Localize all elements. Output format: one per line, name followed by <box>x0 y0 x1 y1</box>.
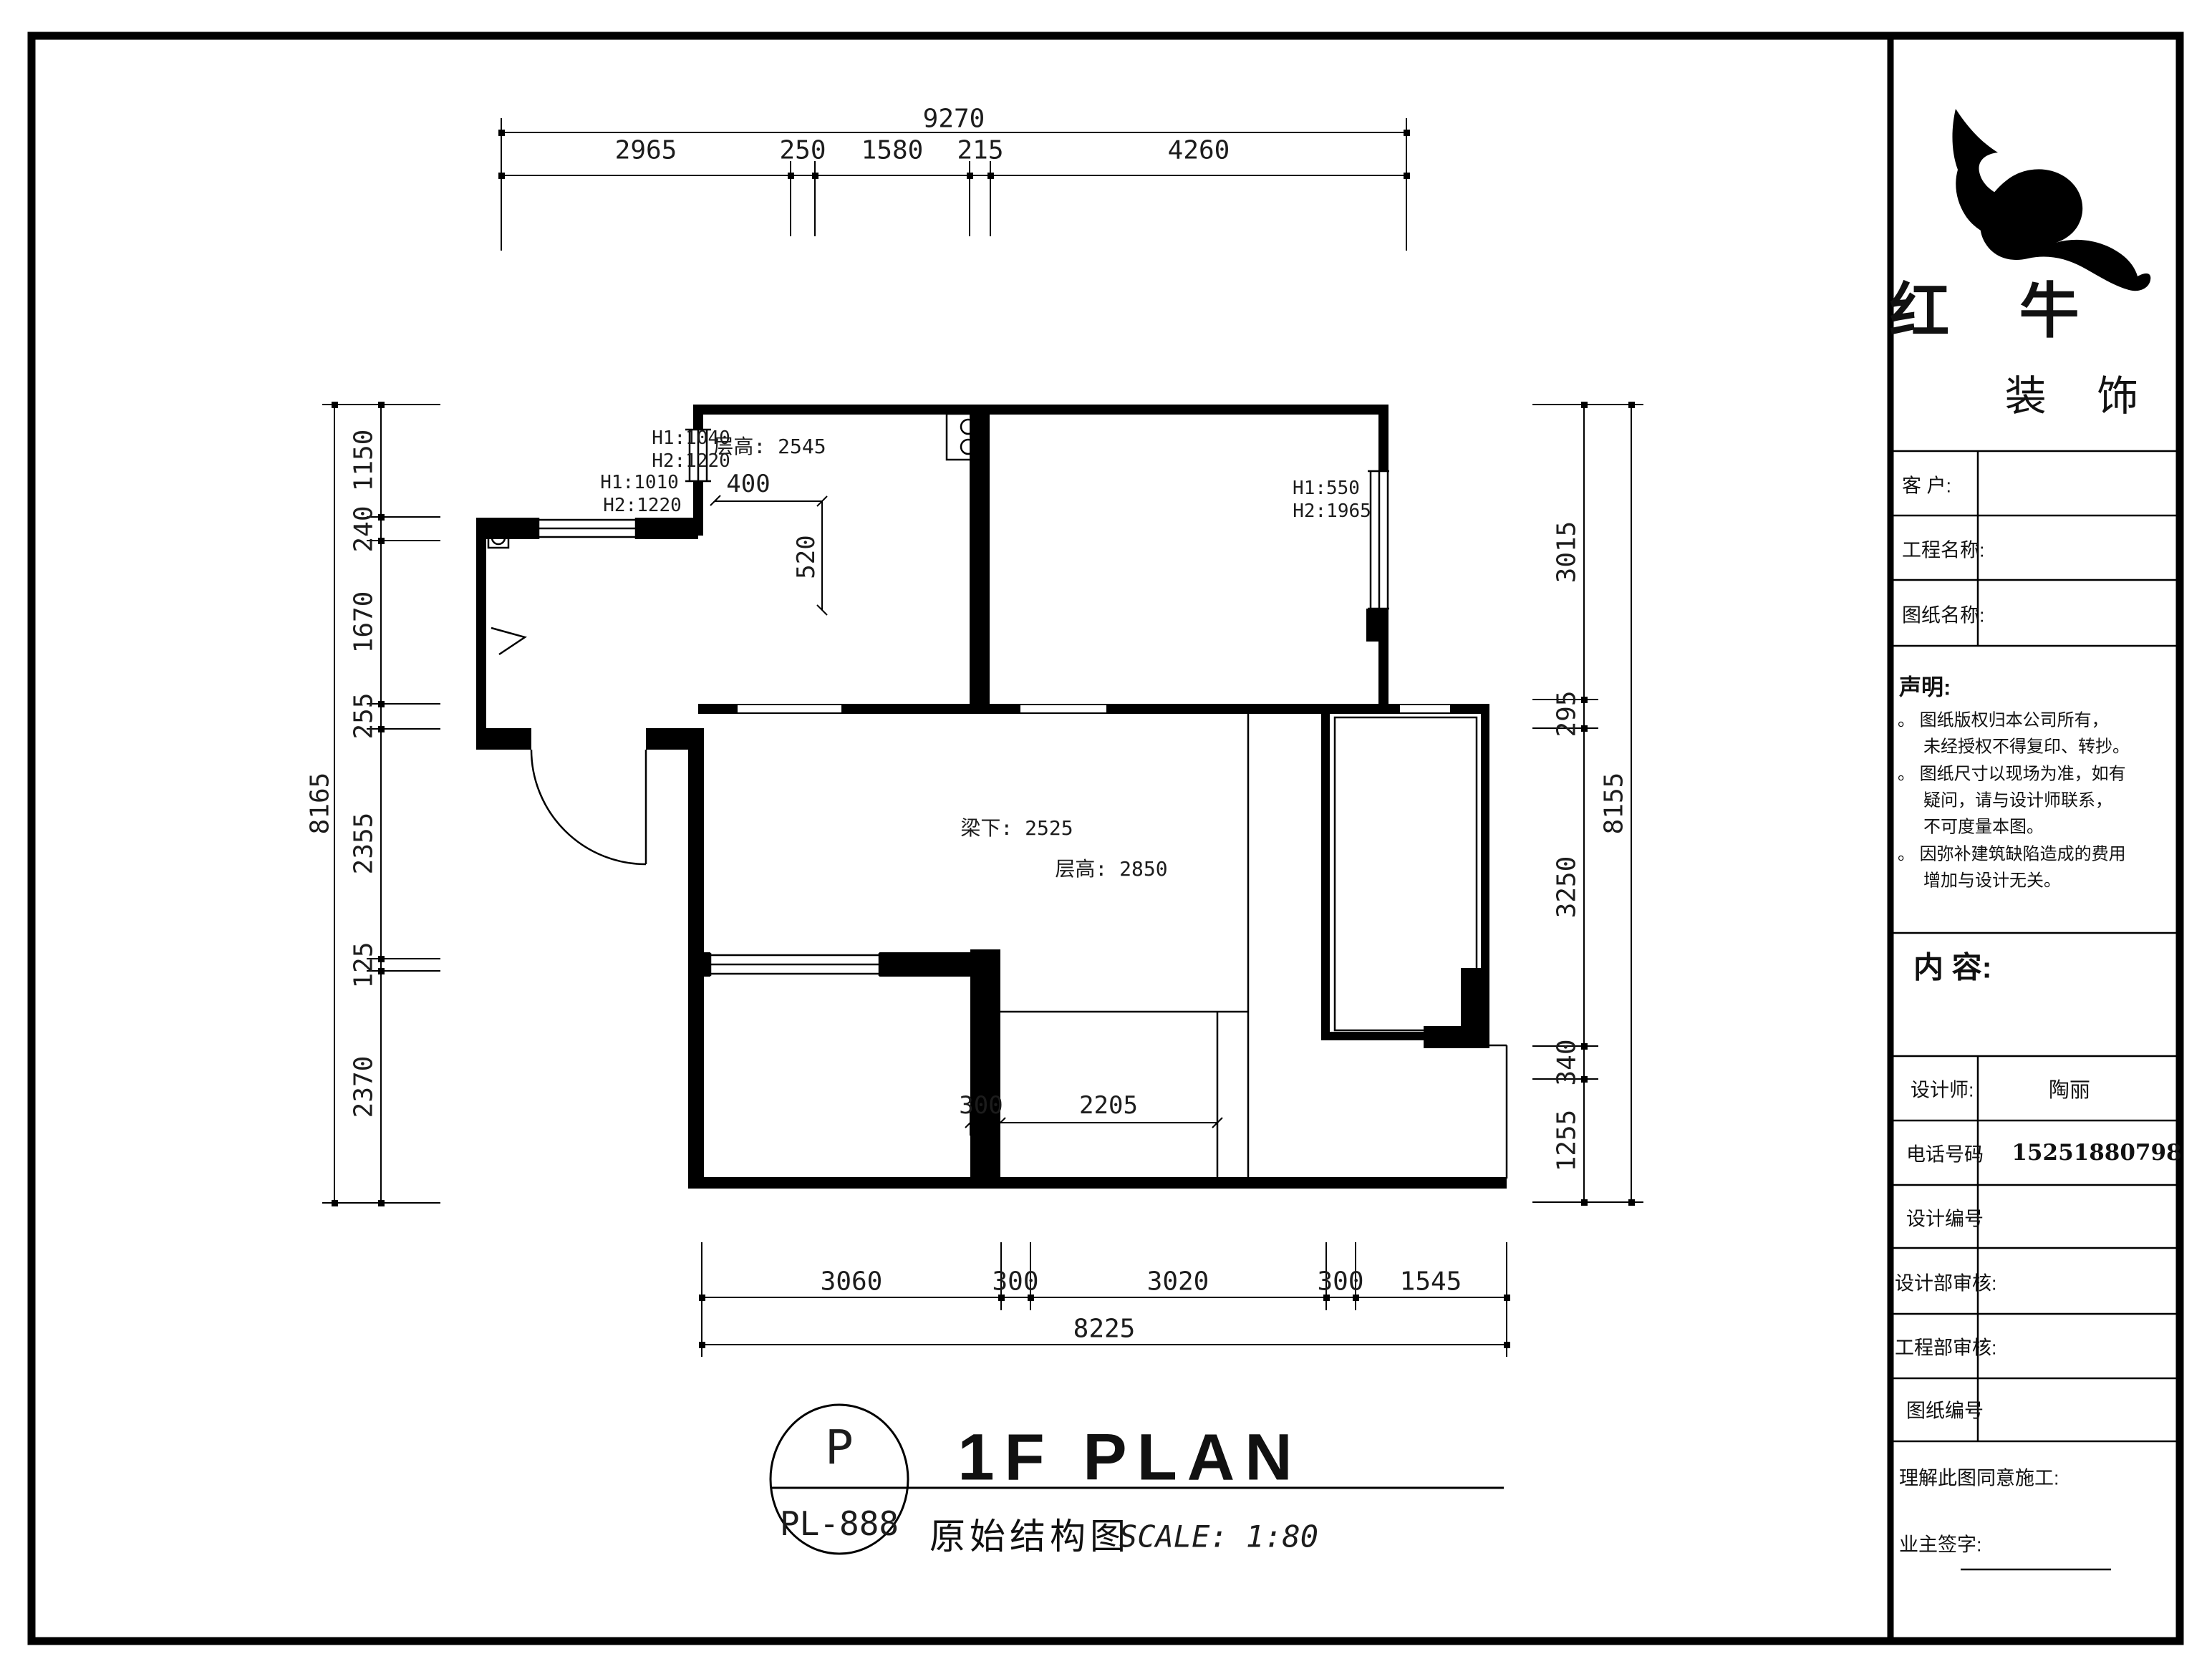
dim-left-seg-6: 125 <box>349 942 379 988</box>
dim-400-label: 400 <box>726 470 770 498</box>
designer-name-value: 陶丽 <box>2049 1073 2090 1103</box>
field-designer-label: 设计师: <box>1911 1075 1974 1103</box>
statement-line: 不可度量本图。 <box>1923 813 2044 838</box>
window-a-h2-label: H2:1220 <box>603 495 682 516</box>
statement-line: 增加与设计无关。 <box>1923 866 2061 891</box>
dim-bottom-seg-2: 300 <box>992 1267 1038 1297</box>
drawing-sheet: 9270 2965 250 1580 215 4260 8165 1150 24… <box>0 0 2212 1679</box>
dim-520-label: 520 <box>792 535 821 579</box>
thin-partitions <box>1000 714 1507 1179</box>
dim-top-seg-2: 250 <box>779 136 826 165</box>
field-project-label: 工程名称: <box>1902 535 1985 563</box>
dim-left-seg-5: 2355 <box>349 813 379 875</box>
dim-left-total: 8165 <box>306 773 335 835</box>
field-phone-label: 电话号码 <box>1906 1139 1984 1167</box>
dim-left-seg-4: 255 <box>349 692 379 739</box>
dim-right-seg-1: 3015 <box>1552 521 1582 584</box>
construction-agreement-label: 理解此图同意施工: <box>1899 1463 2059 1491</box>
brand-subname: 装 饰 <box>2005 362 2157 422</box>
field-design-review-label: 设计部审核: <box>1895 1268 1997 1296</box>
plan-title-en: 1F PLAN <box>957 1421 1302 1496</box>
dim-bottom-seg-5: 1545 <box>1400 1267 1462 1297</box>
field-drawing-label: 图纸名称: <box>1902 600 1985 628</box>
dim-bottom-seg-1: 3060 <box>821 1267 883 1297</box>
field-client-label: 客 户: <box>1902 470 1951 498</box>
statement-line: 未经授权不得复印、转抄。 <box>1923 732 2130 758</box>
dim-right-seg-3: 3250 <box>1552 856 1582 919</box>
dim-right-seg-4: 340 <box>1552 1039 1582 1085</box>
living-ceiling-height-label: 层高: 2850 <box>1055 853 1167 882</box>
dim-bottom-seg-3: 3020 <box>1147 1267 1209 1297</box>
dim-right-seg-2: 295 <box>1552 690 1582 737</box>
field-eng-review-label: 工程部审核: <box>1895 1332 1997 1360</box>
owner-signature-label: 业主签字: <box>1899 1529 1982 1557</box>
statement-line: 。 因弥补建筑缺陷造成的费用 <box>1898 840 2126 865</box>
dim-left-seg-1: 1150 <box>349 430 379 492</box>
dim-top-seg-1: 2965 <box>615 136 677 165</box>
dim-top-seg-3: 1580 <box>861 136 924 165</box>
title-bubble-code: PL-888 <box>780 1504 899 1543</box>
dim-left-seg-2: 240 <box>349 505 379 552</box>
title-bubble-letter: P <box>825 1421 854 1476</box>
statement-line: 疑问，请与设计师联系， <box>1923 786 2112 811</box>
dim-left-seg-3: 1670 <box>349 591 379 654</box>
statement-line: 。 图纸版权归本公司所有， <box>1898 706 2109 731</box>
plan-title-scale: SCALE: 1:80 <box>1119 1519 1318 1554</box>
kitchen-ceiling-height-label: 层高: 2545 <box>713 431 826 460</box>
window-c-h1-label: H1:550 <box>1293 478 1360 499</box>
dim-300-label: 300 <box>959 1091 1003 1120</box>
dim-bottom-seg-4: 300 <box>1317 1267 1363 1297</box>
field-drawing-no-label: 图纸编号 <box>1906 1395 1984 1423</box>
dim-bottom-total: 8225 <box>1073 1315 1136 1344</box>
content-label: 内 容: <box>1913 944 1992 987</box>
dim-top-total: 9270 <box>923 105 985 134</box>
plan-walls <box>476 405 1507 1189</box>
dim-left-seg-7: 2370 <box>349 1056 379 1118</box>
dim-top-seg-5: 4260 <box>1168 136 1230 165</box>
statement-title: 声明: <box>1899 669 1951 702</box>
dim-top-seg-4: 215 <box>957 136 1003 165</box>
field-design-no-label: 设计编号 <box>1906 1204 1984 1232</box>
dim-right-seg-5: 1255 <box>1552 1110 1582 1172</box>
window-a-h1-label: H1:1010 <box>600 472 679 493</box>
under-beam-height-label: 梁下: 2525 <box>960 813 1073 841</box>
statement-line: 。 图纸尺寸以现场为准，如有 <box>1898 760 2126 785</box>
plan-title-cn: 原始结构图 <box>929 1508 1130 1559</box>
window-c-h2-label: H2:1965 <box>1293 500 1371 522</box>
dim-right-total: 8155 <box>1600 773 1629 835</box>
phone-number-value: 15251880798 <box>2011 1140 2181 1166</box>
entry-door <box>531 750 646 864</box>
dim-2205-label: 2205 <box>1079 1091 1138 1120</box>
brand-name: 红 牛 <box>1889 263 2103 350</box>
